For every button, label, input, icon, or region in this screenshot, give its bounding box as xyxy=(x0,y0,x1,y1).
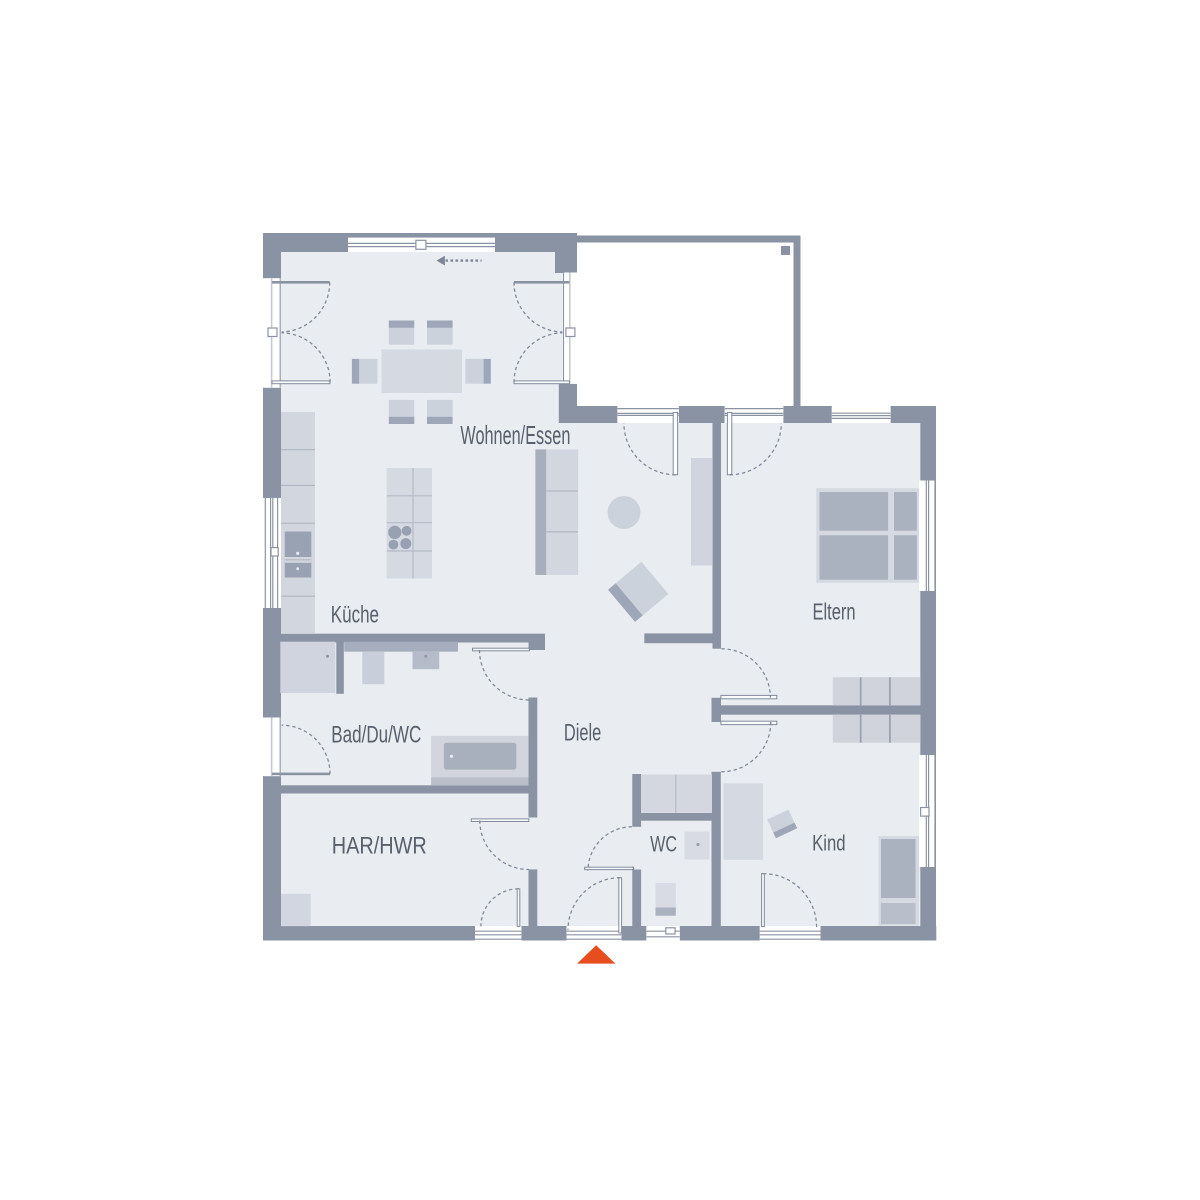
svg-text:Diele: Diele xyxy=(564,719,601,746)
svg-text:Kind: Kind xyxy=(812,831,846,856)
svg-text:Bad/Du/WC: Bad/Du/WC xyxy=(331,722,421,749)
svg-text:Küche: Küche xyxy=(331,601,379,628)
svg-text:WC: WC xyxy=(650,832,677,857)
svg-text:Eltern: Eltern xyxy=(813,599,856,625)
svg-text:HAR/HWR: HAR/HWR xyxy=(332,832,427,859)
svg-text:Wohnen/Essen: Wohnen/Essen xyxy=(460,420,570,450)
